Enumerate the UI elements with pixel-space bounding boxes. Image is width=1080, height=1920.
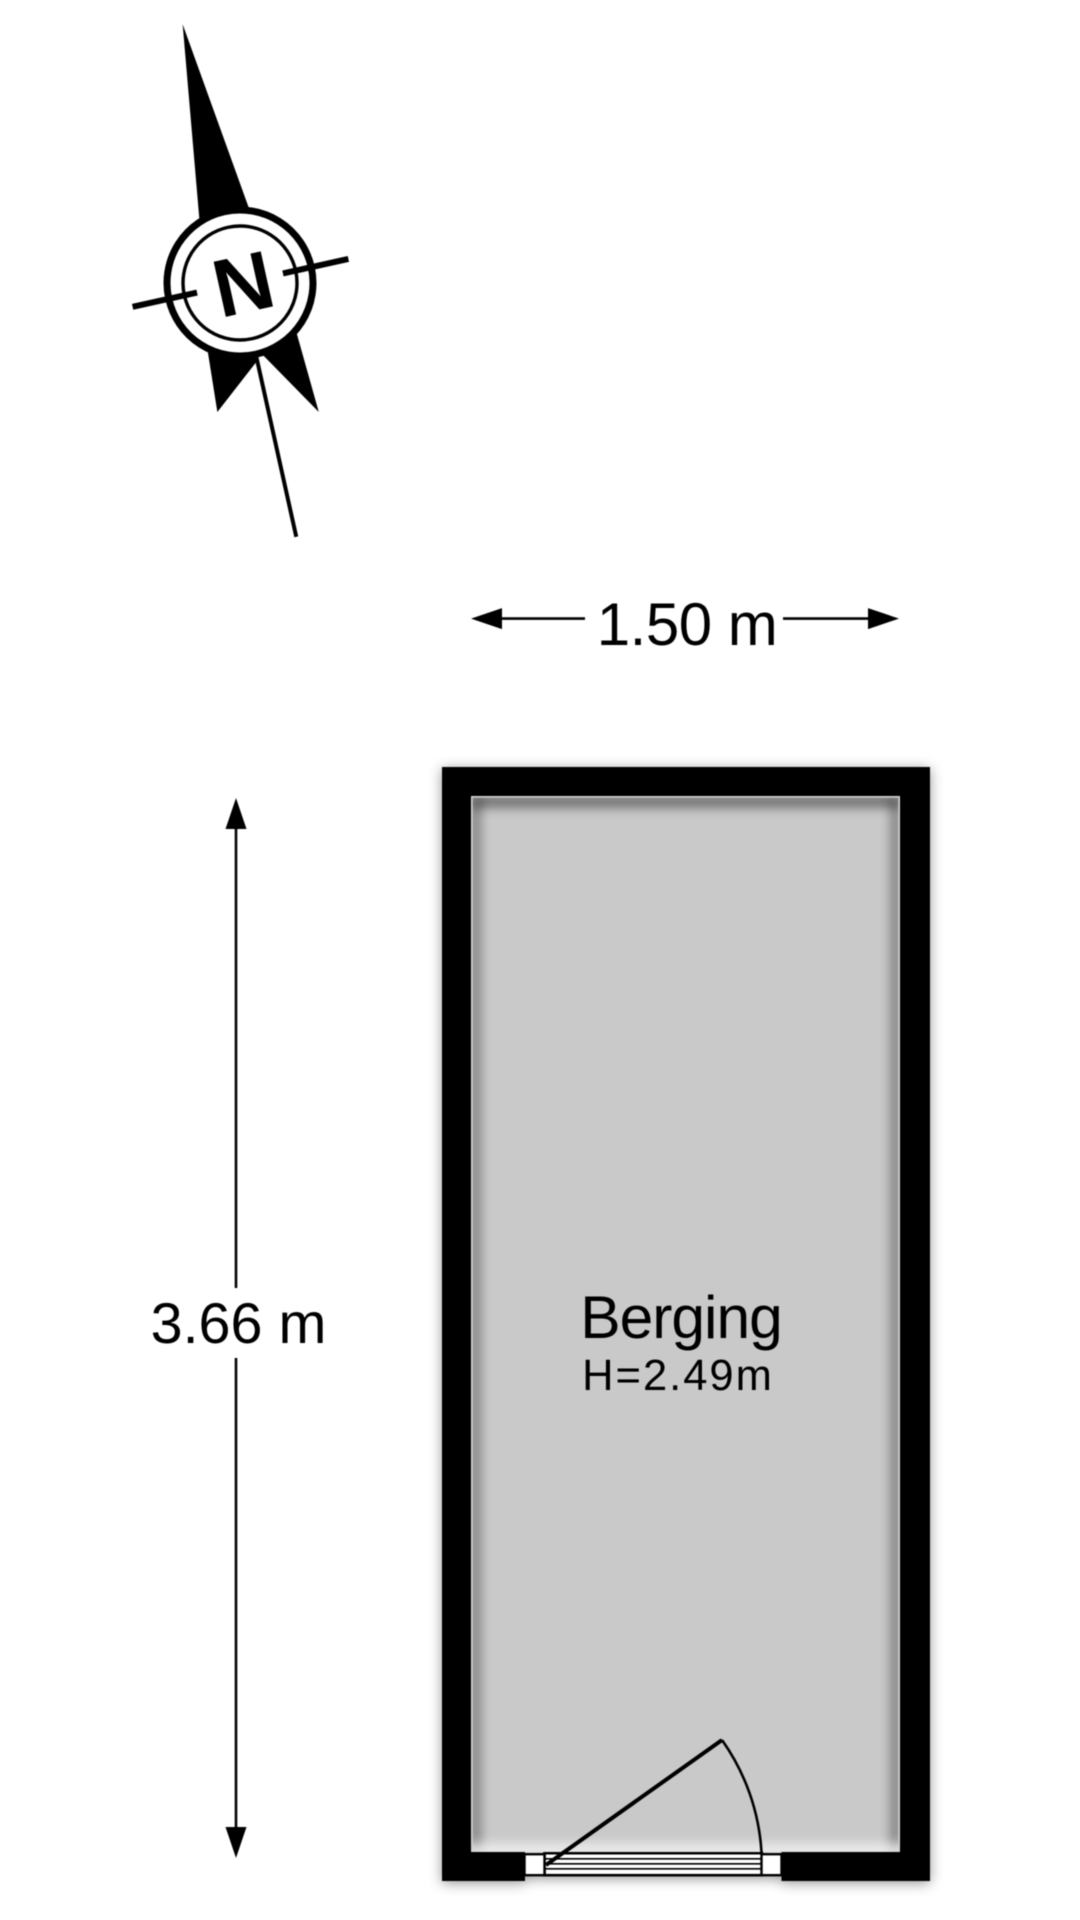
svg-text:H=2.49m: H=2.49m [582,1352,774,1400]
svg-text:1.50 m: 1.50 m [597,591,777,658]
svg-text:Berging: Berging [580,1283,782,1351]
svg-text:3.66 m: 3.66 m [151,1292,327,1356]
